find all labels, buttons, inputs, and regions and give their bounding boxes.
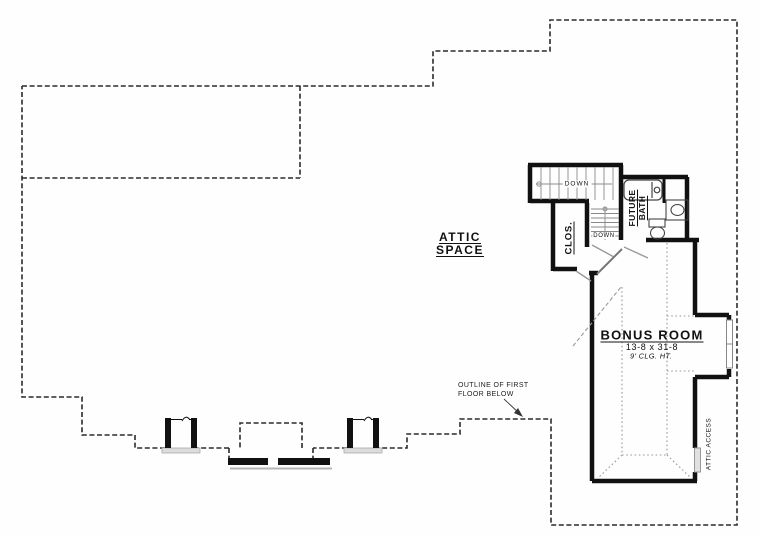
stairs-upper-down-label: DOWN [563,181,592,188]
attic-access-label: ATTIC ACCESS [706,418,713,470]
note-leader-arrow [504,399,523,417]
roof-line-below [22,86,300,178]
window [727,320,733,368]
stairs-lower-down-label: DOWN [592,233,615,239]
attic-space-label-line1: ATTIC [439,230,481,244]
attic-access-panel [695,448,701,472]
vanity-sink [666,200,688,220]
future-bath-label: FUTURE BATH [627,190,647,227]
outline-note-line2: FLOOR BELOW [458,391,529,400]
porch-wall-below [228,458,332,469]
toilet [649,219,665,239]
future-bath-label-line1: FUTURE [627,190,637,227]
chimney-left [162,417,200,453]
outline-note-line1: OUTLINE OF FIRST [458,382,529,391]
bonus-room-dimensions: 13-8 x 31-8 [626,342,678,352]
closet-label: CLOS. [564,221,575,254]
ceiling-break-lines [598,243,695,478]
door-swings [576,245,648,281]
floorplan-canvas: ATTIC SPACE BONUS ROOM 13-8 x 31-8 9' CL… [0,0,760,535]
future-bath-label-line2: BATH [637,196,647,221]
outline-note: OUTLINE OF FIRST FLOOR BELOW [458,382,529,399]
bonus-room-label: BONUS ROOM [601,328,704,343]
floorplan-linework [0,0,760,535]
bonus-room-ceiling-height: 9' CLG. HT. [630,352,672,361]
chimney-right [344,417,382,453]
attic-space-label-line2: SPACE [436,243,484,257]
